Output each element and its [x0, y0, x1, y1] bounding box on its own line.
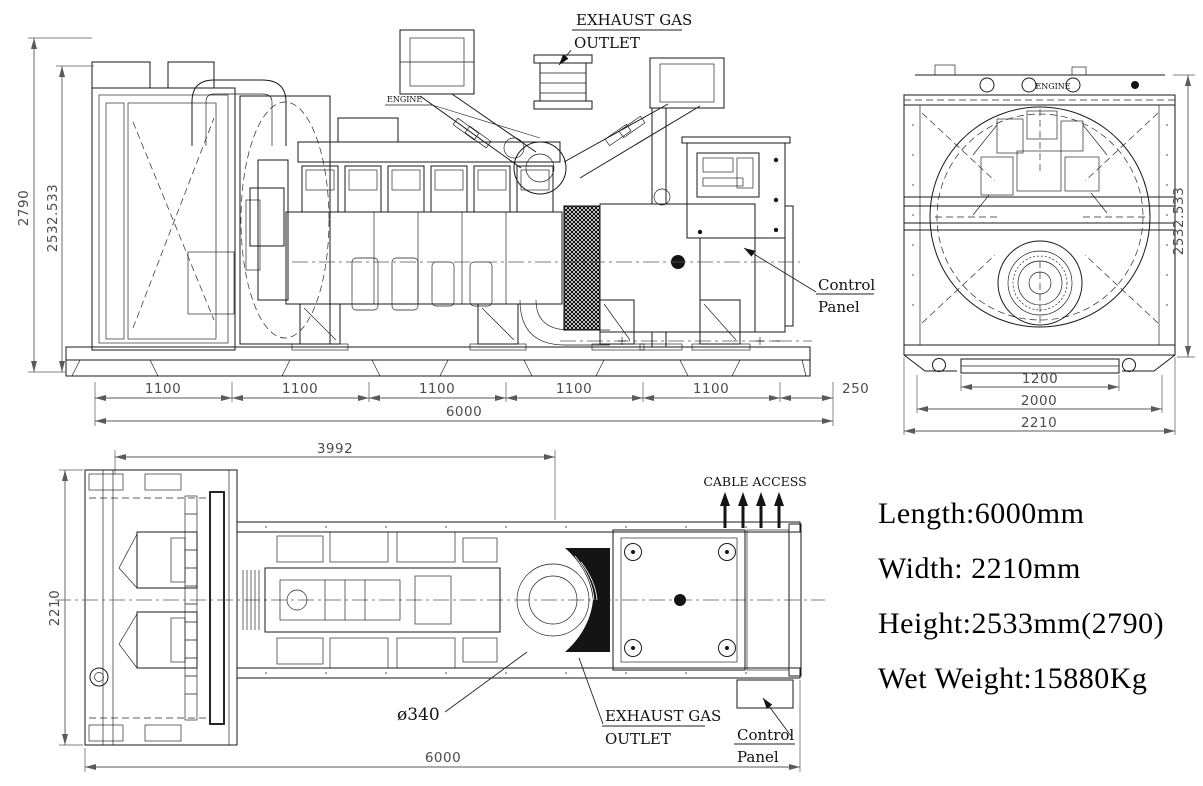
dimension-plan-width: 2210: [47, 470, 83, 745]
spec-height: Height:2533mm(2790): [878, 596, 1203, 651]
drawing-sheet: EXHAUST GAS OUTLET ENGINE Control Panel …: [0, 0, 1203, 786]
air-cleaner: [338, 118, 398, 142]
engine-block: [246, 142, 610, 350]
dim-2790: 2790: [16, 190, 32, 226]
control-panel-plan-box: [737, 680, 793, 708]
frame-cross-rails: [904, 197, 1175, 230]
spec-width: Width: 2210mm: [878, 541, 1203, 596]
end-view-top-fittings: ENGINE: [915, 65, 1165, 92]
dim-250: 250: [842, 381, 869, 397]
dim-6000-plan: 6000: [425, 750, 461, 766]
silencer-left: [400, 30, 474, 94]
exhaust-diameter-callout: ø340: [397, 652, 527, 725]
side-view-drawing: EXHAUST GAS OUTLET ENGINE Control Panel …: [0, 0, 880, 440]
dim-2532-end: 2532.533: [1171, 187, 1187, 255]
control-panel-callout: Control Panel: [744, 248, 875, 316]
control-panel-plan-line1: Control: [737, 726, 794, 744]
engine-label: ENGINE: [387, 95, 422, 104]
exhaust-gas-plan-line1: EXHAUST GAS: [605, 707, 721, 725]
exhaust-gas-label-line1: EXHAUST GAS: [576, 11, 692, 29]
end-view-drawing: ENGINE: [877, 55, 1203, 455]
dim-2000: 2000: [1021, 393, 1057, 409]
alternator: [292, 189, 800, 350]
dim-6000: 6000: [446, 404, 482, 420]
control-panel-label-line2: Panel: [818, 298, 860, 316]
radiator-frame: [904, 95, 1175, 345]
control-panel-box: [682, 137, 790, 238]
exhaust-duct-right: [564, 104, 700, 178]
dim-3992: 3992: [317, 441, 353, 457]
dim-2210: 2210: [1021, 415, 1057, 431]
engine-label-end-view: ENGINE: [1035, 82, 1070, 91]
exhaust-gas-label-line2: OUTLET: [574, 34, 640, 52]
skid-rails: [55, 522, 825, 678]
radiator: [92, 62, 330, 350]
exhaust-gas-plan-line2: OUTLET: [605, 730, 671, 748]
dim-1200: 1200: [1022, 371, 1058, 387]
dim-2210-plan: 2210: [47, 590, 63, 626]
dim-1100-1: 1100: [145, 381, 181, 397]
spec-length: Length:6000mm: [878, 486, 1203, 541]
skid-right-end: [737, 524, 801, 708]
exhaust-outlet-callout: EXHAUST GAS OUTLET: [559, 11, 692, 65]
dimension-base-width: 1200: [961, 371, 1119, 391]
cable-access-callout: CABLE ACCESS: [703, 474, 806, 528]
exhaust-elbow-pipe: [192, 80, 286, 146]
dimension-canopy-height: 2532.533: [45, 66, 94, 372]
exhaust-outlet-callout-plan: EXHAUST GAS OUTLET: [579, 658, 721, 748]
end-view-base: [904, 345, 1175, 373]
dim-1100-3: 1100: [419, 381, 455, 397]
dim-1100-2: 1100: [282, 381, 318, 397]
dimension-total-length: 6000: [95, 404, 833, 421]
specifications: Length:6000mm Width: 2210mm Height:2533m…: [878, 486, 1203, 706]
exhaust-outlet-stack: [534, 55, 592, 109]
cable-access-label: CABLE ACCESS: [703, 474, 806, 489]
radiator-plan: [85, 470, 237, 745]
spec-wet-weight: Wet Weight:15880Kg: [878, 651, 1203, 706]
plan-view-drawing: 3992: [25, 440, 877, 786]
dim-1100-5: 1100: [693, 381, 729, 397]
dim-2532: 2532.533: [45, 184, 61, 252]
dim-1100-4: 1100: [556, 381, 592, 397]
control-panel-label-line1: Control: [818, 276, 875, 294]
diameter-label: ø340: [397, 705, 440, 725]
control-panel-plan-line2: Panel: [737, 748, 779, 766]
